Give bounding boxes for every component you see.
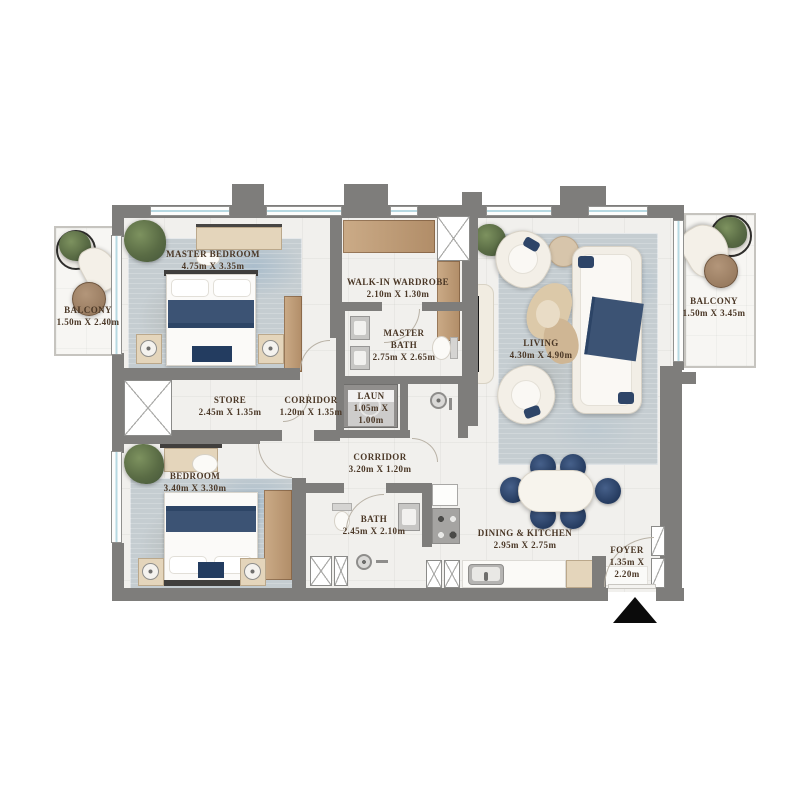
master-bedroom-plant — [124, 220, 166, 262]
bedroom-nightstand-left — [138, 558, 164, 586]
shower-head-icon — [356, 554, 372, 570]
room-name: FOYER — [603, 544, 651, 556]
room-name: CORRIDOR — [349, 451, 412, 463]
wall-segment — [112, 588, 608, 601]
master-bed-throw — [192, 346, 232, 362]
floor-plan: MASTER BEDROOM 4.75m X 3.35m BALCONY 1.5… — [0, 0, 800, 800]
room-label-bedroom: BEDROOM 3.40m X 3.30m — [164, 470, 227, 494]
sofa-pillow — [618, 392, 634, 404]
kitchen-appliance — [432, 484, 458, 506]
master-bath-sink — [350, 346, 370, 370]
window — [673, 220, 684, 362]
master-bed-pillow — [171, 279, 209, 297]
window — [111, 235, 122, 355]
wardrobe-cabinet-top — [343, 220, 435, 253]
sofa-throw — [584, 297, 644, 362]
shaft-box — [124, 380, 172, 436]
shaft-box — [310, 556, 332, 586]
kitchen-sink — [468, 564, 504, 585]
bedroom-wardrobe — [264, 490, 292, 580]
room-dims: 1.20m X 1.35m — [280, 406, 343, 418]
room-name: BATH — [343, 513, 406, 525]
room-name: BALCONY — [683, 295, 746, 307]
lamp-icon — [140, 340, 157, 357]
room-dims: 1.50m X 3.45m — [683, 307, 746, 319]
room-label-store: STORE 2.45m X 1.35m — [199, 394, 262, 418]
wall-segment — [112, 368, 300, 380]
wall-segment — [292, 478, 306, 588]
wall-pier — [462, 192, 482, 206]
shower-bar — [449, 398, 452, 410]
room-label-master-bath: MASTER BATH 2.75m X 2.65m — [373, 327, 436, 363]
room-dims: 4.75m X 3.35m — [166, 260, 260, 272]
shaft-box — [426, 560, 442, 588]
wall-segment — [422, 483, 432, 547]
wall-segment — [400, 376, 408, 438]
sofa-pillow — [578, 256, 594, 268]
shaft-box — [444, 560, 460, 588]
room-name: BEDROOM — [164, 470, 227, 482]
window — [588, 206, 648, 216]
bedroom-bed-blanket — [166, 506, 256, 532]
faucet-icon — [484, 572, 488, 581]
wall-segment — [336, 430, 410, 438]
room-label-foyer: FOYER 1.35m X 2.20m — [603, 544, 651, 580]
room-label-dining-kitchen: DINING & KITCHEN 2.95m X 2.75m — [478, 527, 572, 551]
coffee-table-tray — [536, 300, 560, 328]
shower-head-icon — [430, 392, 447, 409]
master-bedroom-closet — [284, 296, 302, 372]
bedroom-nightstand-right — [240, 558, 266, 586]
bedroom-bed-cushion — [198, 562, 224, 578]
room-label-master-bedroom: MASTER BEDROOM 4.75m X 3.35m — [166, 248, 260, 272]
master-dresser — [196, 224, 282, 250]
wall-segment — [422, 302, 462, 311]
room-label-living: LIVING 4.30m X 4.90m — [510, 337, 573, 361]
master-bed — [166, 270, 256, 366]
room-dims: 1.35m X 2.20m — [603, 556, 651, 580]
room-name: LAUN — [348, 390, 394, 402]
master-bath-sink — [350, 316, 370, 340]
room-name: WALK-IN WARDROBE — [347, 276, 449, 288]
window — [150, 206, 230, 216]
master-bed-pillow — [213, 279, 251, 297]
room-label-balcony-left: BALCONY 1.50m X 2.40m — [57, 304, 120, 328]
living-sofa — [572, 246, 642, 414]
room-name: LIVING — [510, 337, 573, 349]
window — [111, 451, 122, 543]
dining-chair — [595, 478, 621, 504]
faucet-bar — [376, 560, 388, 563]
wall-segment — [682, 372, 696, 384]
room-dims: 2.45m X 2.10m — [343, 525, 406, 537]
room-dims: 2.10m X 1.30m — [347, 288, 449, 300]
room-name: CORRIDOR — [280, 394, 343, 406]
wall-pier — [232, 184, 264, 206]
room-label-walk-in-wardrobe: WALK-IN WARDROBE 2.10m X 1.30m — [347, 276, 449, 300]
wardrobe-cabinet-side — [437, 261, 460, 341]
room-name: BALCONY — [57, 304, 120, 316]
window — [486, 206, 552, 216]
room-dims: 3.20m X 1.20m — [349, 463, 412, 475]
stove-icon — [432, 508, 460, 544]
toilet-tank — [450, 337, 458, 359]
wall-segment — [112, 205, 124, 237]
room-dims: 1.05m X 1.00m — [348, 402, 394, 426]
wall-segment — [336, 302, 345, 378]
master-bed-blanket — [168, 300, 254, 328]
wall-pier — [560, 186, 606, 206]
master-bath-toilet — [432, 334, 458, 362]
shaft-box — [334, 556, 348, 586]
room-name: STORE — [199, 394, 262, 406]
room-dims: 2.95m X 2.75m — [478, 539, 572, 551]
room-dims: 2.75m X 2.65m — [373, 351, 436, 363]
wall-segment — [306, 483, 344, 493]
room-label-bath: BATH 2.45m X 2.10m — [343, 513, 406, 537]
entrance-threshold — [608, 584, 656, 589]
room-label-corridor-main: CORRIDOR 3.20m X 1.20m — [349, 451, 412, 475]
window — [266, 206, 342, 216]
shaft-box — [437, 216, 470, 261]
room-dims: 4.30m X 4.90m — [510, 349, 573, 361]
toilet-tank — [332, 503, 352, 511]
sink-bowl — [354, 321, 366, 335]
room-dims: 1.50m X 2.40m — [57, 316, 120, 328]
room-name: MASTER BATH — [375, 327, 433, 351]
room-name: DINING & KITCHEN — [478, 527, 572, 539]
entrance-marker-icon — [613, 597, 657, 623]
sink-bowl — [354, 351, 366, 365]
room-label-laundry: LAUN 1.05m X 1.00m — [348, 390, 394, 426]
master-nightstand-left — [136, 334, 162, 364]
bedroom-plant — [124, 444, 164, 484]
lamp-icon — [244, 563, 261, 580]
balcony-right-table — [704, 254, 738, 288]
room-label-balcony-right: BALCONY 1.50m X 3.45m — [683, 295, 746, 319]
dining-table — [518, 470, 594, 512]
room-dims: 2.45m X 1.35m — [199, 406, 262, 418]
room-name: MASTER BEDROOM — [166, 248, 260, 260]
lamp-icon — [142, 563, 159, 580]
room-label-corridor-small: CORRIDOR 1.20m X 1.35m — [280, 394, 343, 418]
window — [390, 206, 418, 216]
lamp-icon — [262, 340, 279, 357]
master-nightstand-right — [258, 334, 284, 364]
wall-pier — [344, 184, 388, 206]
room-dims: 3.40m X 3.30m — [164, 482, 227, 494]
